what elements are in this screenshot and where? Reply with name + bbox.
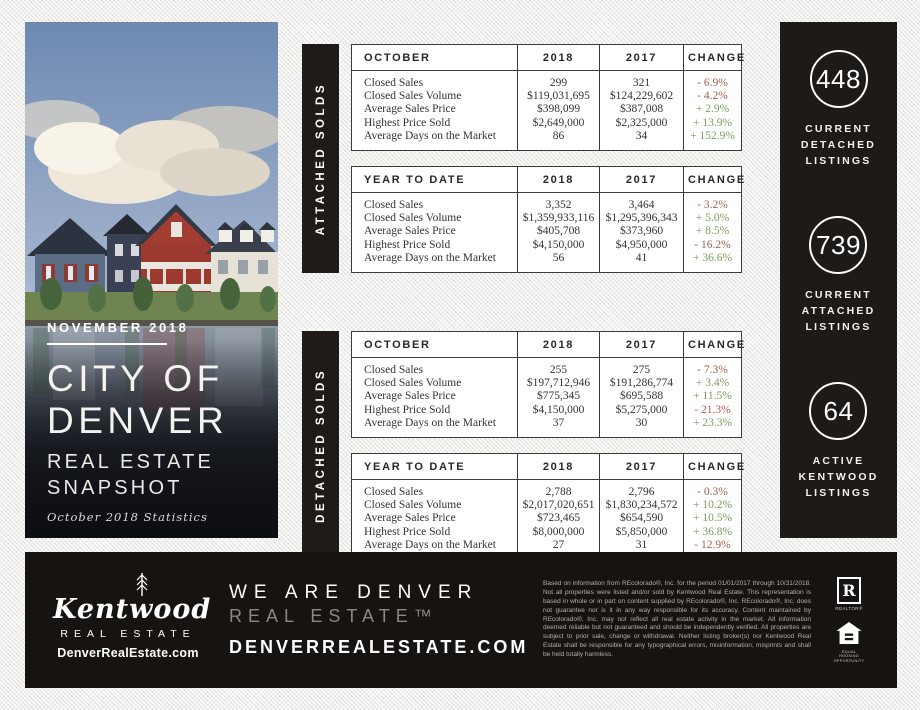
col-2018-header: 2018 xyxy=(518,167,600,193)
metric-label: Highest Price Sold xyxy=(352,404,518,417)
table-row: Closed Sales255275- 7.3% xyxy=(352,358,742,378)
value-2018: $2,649,000 xyxy=(518,117,600,130)
table-row: Closed Sales Volume$2,017,020,651$1,830,… xyxy=(352,499,742,512)
table-row: Average Sales Price$398,099$387,008+ 2.9… xyxy=(352,103,742,116)
value-change: + 152.9% xyxy=(684,130,742,151)
metric-label: Closed Sales xyxy=(352,358,518,378)
value-change: + 36.6% xyxy=(684,252,742,273)
stat-value: 739 xyxy=(816,230,861,261)
value-2018: $398,099 xyxy=(518,103,600,116)
metric-label: Average Days on the Market xyxy=(352,130,518,151)
metric-label: Average Sales Price xyxy=(352,225,518,238)
detached-listings-stat: 448 CURRENT DETACHED LISTINGS xyxy=(801,50,876,169)
hero-photo-panel: NOVEMBER 2018 CITY OF DENVER REAL ESTATE… xyxy=(25,22,278,538)
metric-label: Average Sales Price xyxy=(352,390,518,403)
value-2017: $1,295,396,343 xyxy=(600,212,684,225)
value-change: + 5.0% xyxy=(684,212,742,225)
metric-label: Highest Price Sold xyxy=(352,526,518,539)
value-2018: $775,345 xyxy=(518,390,600,403)
value-2018: 56 xyxy=(518,252,600,273)
table-row: Average Days on the Market5641+ 36.6% xyxy=(352,252,742,273)
value-2017: $695,588 xyxy=(600,390,684,403)
value-change: + 10.2% xyxy=(684,499,742,512)
value-2018: $1,359,933,116 xyxy=(518,212,600,225)
value-change: + 8.5% xyxy=(684,225,742,238)
col-2017-header: 2017 xyxy=(600,332,684,358)
stat-label: CURRENT ATTACHED LISTINGS xyxy=(802,287,876,335)
value-2017: $4,950,000 xyxy=(600,239,684,252)
value-2018: $8,000,000 xyxy=(518,526,600,539)
stat-label: ACTIVE KENTWOOD LISTINGS xyxy=(798,453,878,501)
section-label-vertical: DETACHED SOLDS xyxy=(315,368,327,523)
title-line-2: DENVER xyxy=(47,400,270,442)
value-2017: 321 xyxy=(600,71,684,91)
table-header-row: OCTOBER 2018 2017 CHANGE xyxy=(352,332,742,358)
footer-badges: R REALTOR® EQUAL HOUSING OPPORTUNITY xyxy=(823,577,875,664)
value-change: + 13.9% xyxy=(684,117,742,130)
table-header-row: YEAR TO DATE 2018 2017 CHANGE xyxy=(352,454,742,480)
col-2018-header: 2018 xyxy=(518,454,600,480)
value-change: + 3.4% xyxy=(684,377,742,390)
table-row: Average Days on the Market3730+ 23.3% xyxy=(352,417,742,438)
value-2018: $4,150,000 xyxy=(518,404,600,417)
tagline-line-2: REAL ESTATE™ xyxy=(229,606,528,627)
value-2017: 3,464 xyxy=(600,193,684,213)
value-change: - 6.9% xyxy=(684,71,742,91)
period-header: OCTOBER xyxy=(352,332,518,358)
metric-label: Closed Sales Volume xyxy=(352,90,518,103)
attached-solds-section: ATTACHED SOLDS OCTOBER 2018 2017 CHANGE … xyxy=(302,44,742,273)
value-change: - 3.2% xyxy=(684,193,742,213)
value-2018: 86 xyxy=(518,130,600,151)
detached-solds-section: DETACHED SOLDS OCTOBER 2018 2017 CHANGE … xyxy=(302,331,742,560)
metric-label: Highest Price Sold xyxy=(352,117,518,130)
value-2018: $723,465 xyxy=(518,512,600,525)
metric-label: Average Sales Price xyxy=(352,512,518,525)
realtor-icon: R REALTOR® xyxy=(835,577,862,611)
period-header: YEAR TO DATE xyxy=(352,454,518,480)
subtitle-line-2: SNAPSHOT xyxy=(47,475,270,501)
page-subtitle: REAL ESTATE SNAPSHOT xyxy=(47,449,270,501)
value-2018: $2,017,020,651 xyxy=(518,499,600,512)
statistics-tables-area: ATTACHED SOLDS OCTOBER 2018 2017 CHANGE … xyxy=(302,44,742,618)
value-change: - 0.3% xyxy=(684,480,742,500)
metric-label: Closed Sales xyxy=(352,71,518,91)
value-change: + 23.3% xyxy=(684,417,742,438)
value-change: - 16.2% xyxy=(684,239,742,252)
value-2017: $1,830,234,572 xyxy=(600,499,684,512)
metric-label: Average Days on the Market xyxy=(352,252,518,273)
attached-ytd-table: YEAR TO DATE 2018 2017 CHANGE Closed Sal… xyxy=(351,166,742,273)
value-2017: $654,590 xyxy=(600,512,684,525)
value-change: + 10.5% xyxy=(684,512,742,525)
table-header-row: YEAR TO DATE 2018 2017 CHANGE xyxy=(352,167,742,193)
metric-label: Average Sales Price xyxy=(352,103,518,116)
table-row: Highest Price Sold$8,000,000$5,850,000+ … xyxy=(352,526,742,539)
value-2017: 41 xyxy=(600,252,684,273)
value-2017: 34 xyxy=(600,130,684,151)
stat-value: 448 xyxy=(816,64,861,95)
value-2018: 2,788 xyxy=(518,480,600,500)
value-2018: $4,150,000 xyxy=(518,239,600,252)
value-2017: $2,325,000 xyxy=(600,117,684,130)
table-row: Closed Sales Volume$119,031,695$124,229,… xyxy=(352,90,742,103)
col-2017-header: 2017 xyxy=(600,167,684,193)
month-label: NOVEMBER 2018 xyxy=(47,320,270,335)
value-2018: 255 xyxy=(518,358,600,378)
table-row: Closed Sales Volume$197,712,946$191,286,… xyxy=(352,377,742,390)
value-change: + 11.5% xyxy=(684,390,742,403)
table-header-row: OCTOBER 2018 2017 CHANGE xyxy=(352,45,742,71)
stat-circle: 739 xyxy=(809,216,867,274)
tree-icon xyxy=(135,572,149,596)
value-2017: 30 xyxy=(600,417,684,438)
detached-solds-strip: DETACHED SOLDS xyxy=(302,331,339,560)
value-change: - 7.3% xyxy=(684,358,742,378)
metric-label: Closed Sales Volume xyxy=(352,377,518,390)
metric-label: Highest Price Sold xyxy=(352,239,518,252)
value-2018: 37 xyxy=(518,417,600,438)
stat-value: 64 xyxy=(824,396,854,427)
statistics-note: October 2018 Statistics xyxy=(47,510,270,524)
table-row: Closed Sales3,3523,464- 3.2% xyxy=(352,193,742,213)
value-2017: $5,850,000 xyxy=(600,526,684,539)
table-row: Highest Price Sold$4,150,000$5,275,000- … xyxy=(352,404,742,417)
metric-label: Average Days on the Market xyxy=(352,417,518,438)
period-header: YEAR TO DATE xyxy=(352,167,518,193)
metric-label: Closed Sales xyxy=(352,480,518,500)
col-change-header: CHANGE xyxy=(684,454,742,480)
col-2018-header: 2018 xyxy=(518,332,600,358)
value-2018: 3,352 xyxy=(518,193,600,213)
kentwood-listings-stat: 64 ACTIVE KENTWOOD LISTINGS xyxy=(798,382,878,501)
attached-listings-stat: 739 CURRENT ATTACHED LISTINGS xyxy=(802,216,876,335)
title-divider xyxy=(47,343,167,345)
value-2017: $191,286,774 xyxy=(600,377,684,390)
stat-label: CURRENT DETACHED LISTINGS xyxy=(801,121,876,169)
value-2018: $405,708 xyxy=(518,225,600,238)
stat-circle: 64 xyxy=(809,382,867,440)
brand-subtitle: REAL ESTATE xyxy=(53,628,203,640)
brand-website: DenverRealEstate.com xyxy=(53,646,203,660)
metric-label: Closed Sales xyxy=(352,193,518,213)
legal-disclaimer: Based on information from REcolorado®, I… xyxy=(543,580,811,659)
col-change-header: CHANGE xyxy=(684,45,742,71)
table-row: Average Sales Price$405,708$373,960+ 8.5… xyxy=(352,225,742,238)
value-change: - 4.2% xyxy=(684,90,742,103)
value-change: - 21.3% xyxy=(684,404,742,417)
value-2018: 299 xyxy=(518,71,600,91)
table-row: Highest Price Sold$2,649,000$2,325,000+ … xyxy=(352,117,742,130)
table-row: Closed Sales Volume$1,359,933,116$1,295,… xyxy=(352,212,742,225)
col-2017-header: 2017 xyxy=(600,454,684,480)
metric-label: Closed Sales Volume xyxy=(352,499,518,512)
equal-housing-icon: EQUAL HOUSING OPPORTUNITY xyxy=(832,622,866,664)
value-2017: $387,008 xyxy=(600,103,684,116)
tagline-block: WE ARE DENVER REAL ESTATE™ DENVERREALEST… xyxy=(229,582,528,658)
metric-label: Closed Sales Volume xyxy=(352,212,518,225)
attached-solds-strip: ATTACHED SOLDS xyxy=(302,44,339,273)
col-change-header: CHANGE xyxy=(684,167,742,193)
table-row: Average Sales Price$723,465$654,590+ 10.… xyxy=(352,512,742,525)
snapshot-flyer: NOVEMBER 2018 CITY OF DENVER REAL ESTATE… xyxy=(0,0,920,710)
table-row: Closed Sales299321- 6.9% xyxy=(352,71,742,91)
brand-name: Kentwood xyxy=(53,594,203,625)
value-change: + 36.8% xyxy=(684,526,742,539)
value-2017: 275 xyxy=(600,358,684,378)
title-line-1: CITY OF xyxy=(47,358,270,400)
attached-october-table: OCTOBER 2018 2017 CHANGE Closed Sales299… xyxy=(351,44,742,151)
col-2017-header: 2017 xyxy=(600,45,684,71)
value-2017: 2,796 xyxy=(600,480,684,500)
stat-circle: 448 xyxy=(810,50,868,108)
tagline-line-1: WE ARE DENVER xyxy=(229,582,528,604)
detached-october-table: OCTOBER 2018 2017 CHANGE Closed Sales255… xyxy=(351,331,742,438)
page-title: CITY OF DENVER xyxy=(47,358,270,442)
table-row: Highest Price Sold$4,150,000$4,950,000- … xyxy=(352,239,742,252)
table-row: Average Sales Price$775,345$695,588+ 11.… xyxy=(352,390,742,403)
col-change-header: CHANGE xyxy=(684,332,742,358)
col-2018-header: 2018 xyxy=(518,45,600,71)
value-2017: $5,275,000 xyxy=(600,404,684,417)
value-2017: $373,960 xyxy=(600,225,684,238)
detached-ytd-table: YEAR TO DATE 2018 2017 CHANGE Closed Sal… xyxy=(351,453,742,560)
subtitle-line-1: REAL ESTATE xyxy=(47,449,270,475)
hero-text-block: NOVEMBER 2018 CITY OF DENVER REAL ESTATE… xyxy=(47,320,270,524)
table-row: Closed Sales2,7882,796- 0.3% xyxy=(352,480,742,500)
value-2017: $124,229,602 xyxy=(600,90,684,103)
footer: Kentwood REAL ESTATE DenverRealEstate.co… xyxy=(25,552,897,688)
section-label-vertical: ATTACHED SOLDS xyxy=(315,82,327,235)
value-2018: $119,031,695 xyxy=(518,90,600,103)
period-header: OCTOBER xyxy=(352,45,518,71)
table-row: Average Days on the Market8634+ 152.9% xyxy=(352,130,742,151)
kentwood-logo: Kentwood REAL ESTATE DenverRealEstate.co… xyxy=(53,580,203,660)
value-change: + 2.9% xyxy=(684,103,742,116)
website-url: DENVERREALESTATE.COM xyxy=(229,637,528,658)
value-2018: $197,712,946 xyxy=(518,377,600,390)
listings-sidebar: 448 CURRENT DETACHED LISTINGS 739 CURREN… xyxy=(780,22,897,538)
